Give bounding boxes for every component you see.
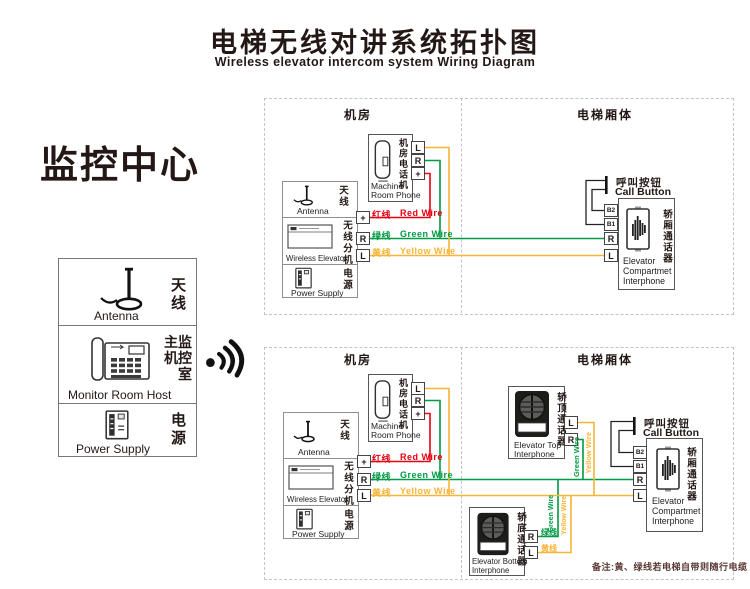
yellow-wire-vertical-label: Yellow Wire bbox=[561, 496, 568, 535]
bottom-interphone-en1: Elevator Bottom bbox=[472, 557, 527, 566]
unit-antenna-zh: 天线 bbox=[335, 185, 349, 208]
speaker-icon bbox=[475, 512, 511, 556]
compartment-en1: Elevator bbox=[652, 496, 684, 506]
wiring-diagram-canvas: 电梯无线对讲系统拓扑图 Wireless elevator intercom s… bbox=[0, 0, 750, 589]
compartment-terminal-l: L bbox=[604, 249, 618, 262]
phone-terminal-plus: + bbox=[411, 407, 425, 420]
unit-wireless-row: 无线分机 Wireless Elevator bbox=[284, 458, 358, 505]
top-machine-room-unit: 天线 Antenna 无线分机 Wireless Elevator 电源 Pow… bbox=[282, 181, 358, 298]
unit-power-en: Power Supply bbox=[292, 529, 344, 539]
terminal-l: L bbox=[356, 249, 370, 262]
unit-antenna-en: Antenna bbox=[298, 447, 330, 457]
green-wire-label: 绿线Green Wire bbox=[372, 229, 453, 242]
unit-power-en: Power Supply bbox=[291, 288, 343, 298]
top-compartment-interphone: 轿厢通话器 Elevator Compartmet Interphone bbox=[618, 198, 675, 290]
bottom-machine-room-unit: 天线 Antenna 无线分机 Wireless Elevator 电源 Pow… bbox=[283, 412, 359, 539]
unit-wireless-en: Wireless Elevator bbox=[286, 254, 347, 263]
unit-antenna-row: 天线 Antenna bbox=[284, 413, 358, 458]
compartment-terminal-r: R bbox=[633, 473, 647, 486]
antenna-icon bbox=[290, 184, 318, 207]
phone-terminal-plus: + bbox=[411, 167, 425, 180]
unit-antenna-row: 天线 Antenna bbox=[283, 182, 357, 217]
wireless-extension-icon bbox=[287, 463, 335, 491]
phone-terminal-r: R bbox=[411, 154, 425, 167]
elevator-bottom-interphone: 轿底通话器 Elevator Bottom Interphone bbox=[469, 507, 525, 576]
unit-power-row: 电源 Power Supply bbox=[284, 505, 358, 540]
compartment-terminal-l: L bbox=[633, 489, 647, 502]
green-wire-vertical-label: Green Wire bbox=[572, 437, 581, 477]
bottom-interphone-terminal-r: R bbox=[524, 530, 538, 543]
compartment-terminal-b2: B2 bbox=[633, 446, 647, 459]
yellow-wire-vertical-label: Yellow Wire bbox=[584, 432, 593, 474]
compartment-terminal-b2: B2 bbox=[604, 204, 618, 217]
top-interphone-terminal-l: L bbox=[564, 416, 578, 429]
compartment-interphone-zh: 轿厢通话器 bbox=[659, 209, 673, 264]
bottom-compartment-interphone: 轿厢通话器 Elevator Compartmet Interphone bbox=[646, 438, 703, 532]
compartment-en2: Compartmet bbox=[652, 506, 700, 516]
machine-room-phone-en2: Room Phone bbox=[371, 430, 421, 440]
machine-room-phone-en2: Room Phone bbox=[371, 190, 421, 200]
compartment-interphone-zh: 轿厢通话器 bbox=[683, 447, 697, 502]
elevator-top-interphone: 轿顶通话器 Elevator Top Interphone bbox=[508, 386, 565, 459]
phone-terminal-l: L bbox=[411, 141, 425, 154]
terminal-r: R bbox=[356, 232, 370, 245]
unit-antenna-zh: 天线 bbox=[336, 419, 350, 442]
compartment-en3: Interphone bbox=[652, 516, 694, 526]
compartment-en2: Compartmet bbox=[623, 266, 671, 276]
top-machine-room-phone: 机房电话机 Machine Room Phone bbox=[368, 134, 413, 202]
green-wire-vertical-label: Green Wire bbox=[548, 495, 555, 532]
yellow-wire-label: 黄线Yellow Wire bbox=[372, 246, 455, 259]
top-interphone-en2: Interphone bbox=[514, 449, 555, 459]
yellow-wire-label: 黄线Yellow Wire bbox=[372, 486, 455, 499]
yellow-wire-tag: 黄线 bbox=[541, 543, 557, 554]
green-wire-label: 绿线Green Wire bbox=[372, 470, 453, 483]
bottom-machine-room-phone: 机房电话机 Machine Room Phone bbox=[368, 374, 413, 442]
compartment-terminal-b1: B1 bbox=[633, 460, 647, 473]
compartment-en3: Interphone bbox=[623, 276, 665, 286]
speaker-icon bbox=[514, 390, 550, 438]
unit-wireless-en: Wireless Elevator bbox=[287, 495, 348, 504]
wireless-extension-icon bbox=[286, 222, 334, 250]
power-supply-icon bbox=[296, 508, 313, 531]
power-supply-icon bbox=[295, 267, 312, 290]
red-wire-label: 红线Red Wire bbox=[372, 452, 443, 465]
unit-antenna-en: Antenna bbox=[297, 206, 329, 216]
compartment-terminal-b1: B1 bbox=[604, 218, 618, 231]
unit-power-row: 电源 Power Supply bbox=[283, 264, 357, 299]
terminal-l: L bbox=[357, 489, 371, 502]
compartment-terminal-r: R bbox=[604, 232, 618, 245]
handset-icon bbox=[372, 139, 394, 183]
terminal-plus: + bbox=[356, 211, 370, 224]
phone-terminal-r: R bbox=[411, 394, 425, 407]
handset-icon bbox=[372, 379, 394, 423]
intercom-panel-icon bbox=[655, 446, 681, 492]
red-wire-label: 红线Red Wire bbox=[372, 208, 443, 221]
bottom-interphone-terminal-l: L bbox=[524, 546, 538, 559]
compartment-en1: Elevator bbox=[623, 256, 655, 266]
intercom-panel-icon bbox=[625, 206, 651, 252]
terminal-r: R bbox=[357, 473, 371, 486]
terminal-plus: + bbox=[357, 455, 371, 468]
unit-wireless-row: 无线分机 Wireless Elevator bbox=[283, 217, 357, 264]
bottom-interphone-en2: Interphone bbox=[472, 566, 509, 575]
antenna-icon bbox=[291, 419, 319, 444]
